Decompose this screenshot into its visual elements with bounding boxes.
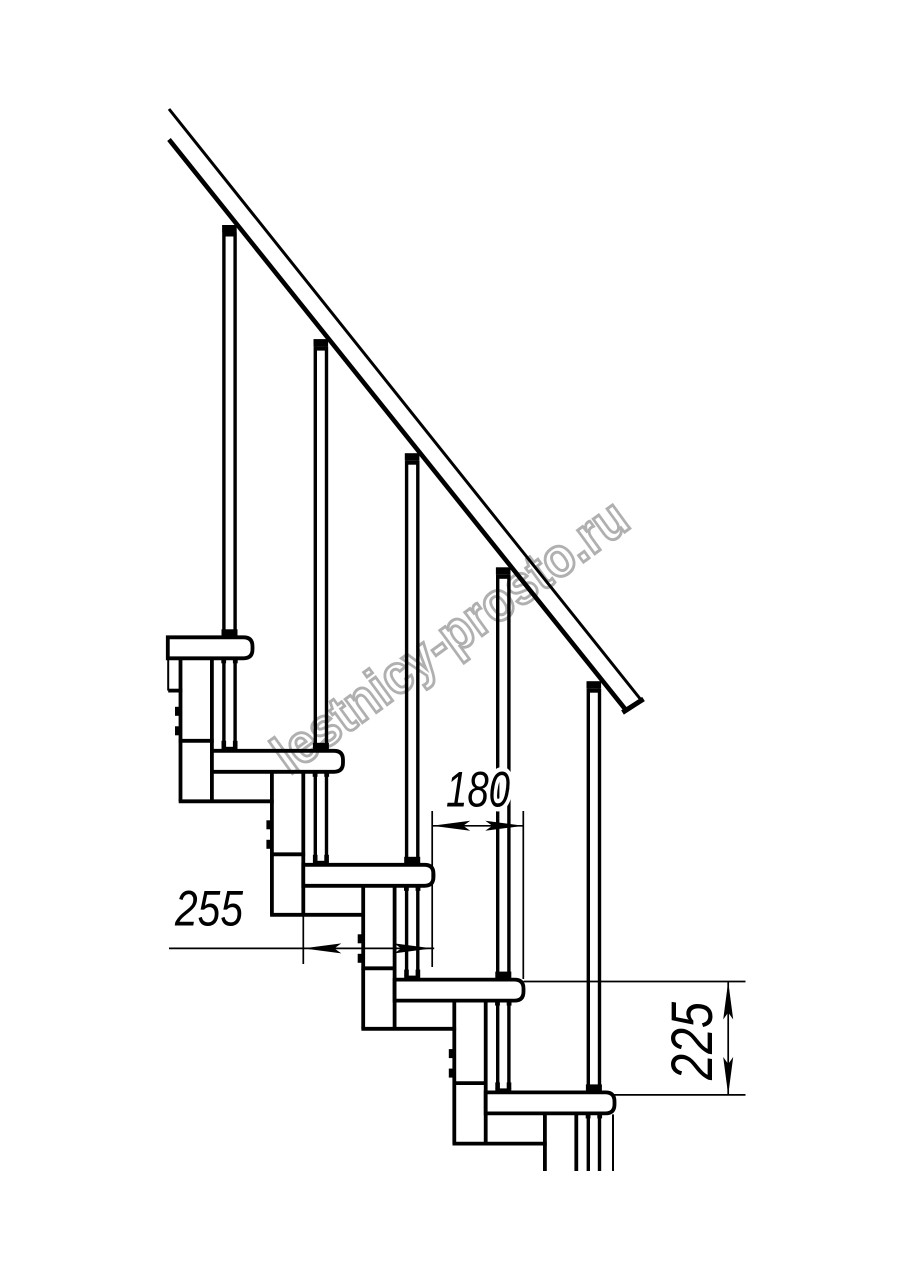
- svg-text:180: 180: [446, 762, 510, 818]
- svg-text:255: 255: [174, 881, 243, 937]
- svg-text:225: 225: [660, 1001, 725, 1080]
- svg-text:lestnicy-prosto.ru: lestnicy-prosto.ru: [260, 486, 639, 785]
